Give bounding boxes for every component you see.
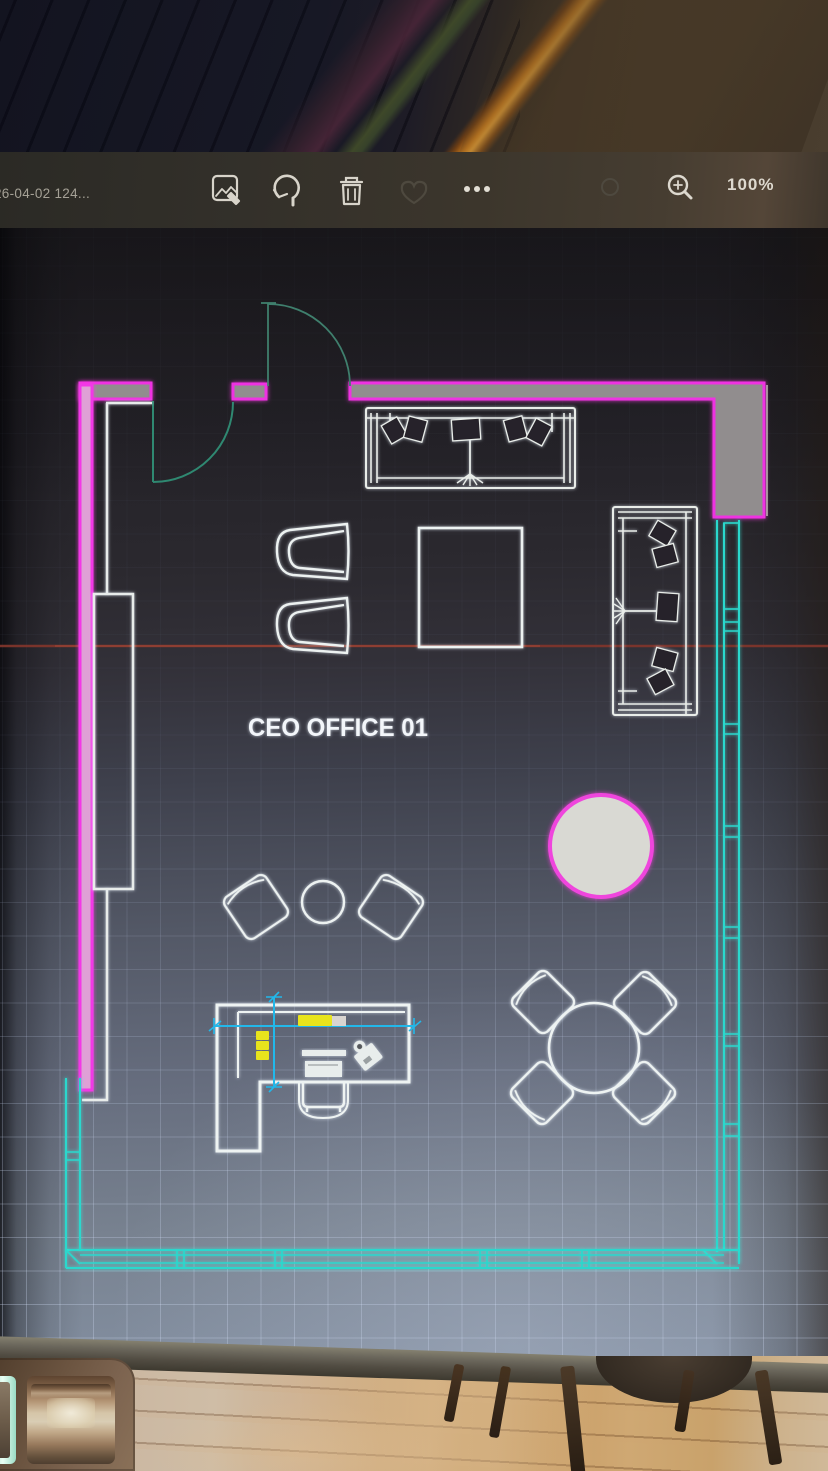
svg-text:CEO OFFICE 01: CEO OFFICE 01 (248, 714, 428, 742)
